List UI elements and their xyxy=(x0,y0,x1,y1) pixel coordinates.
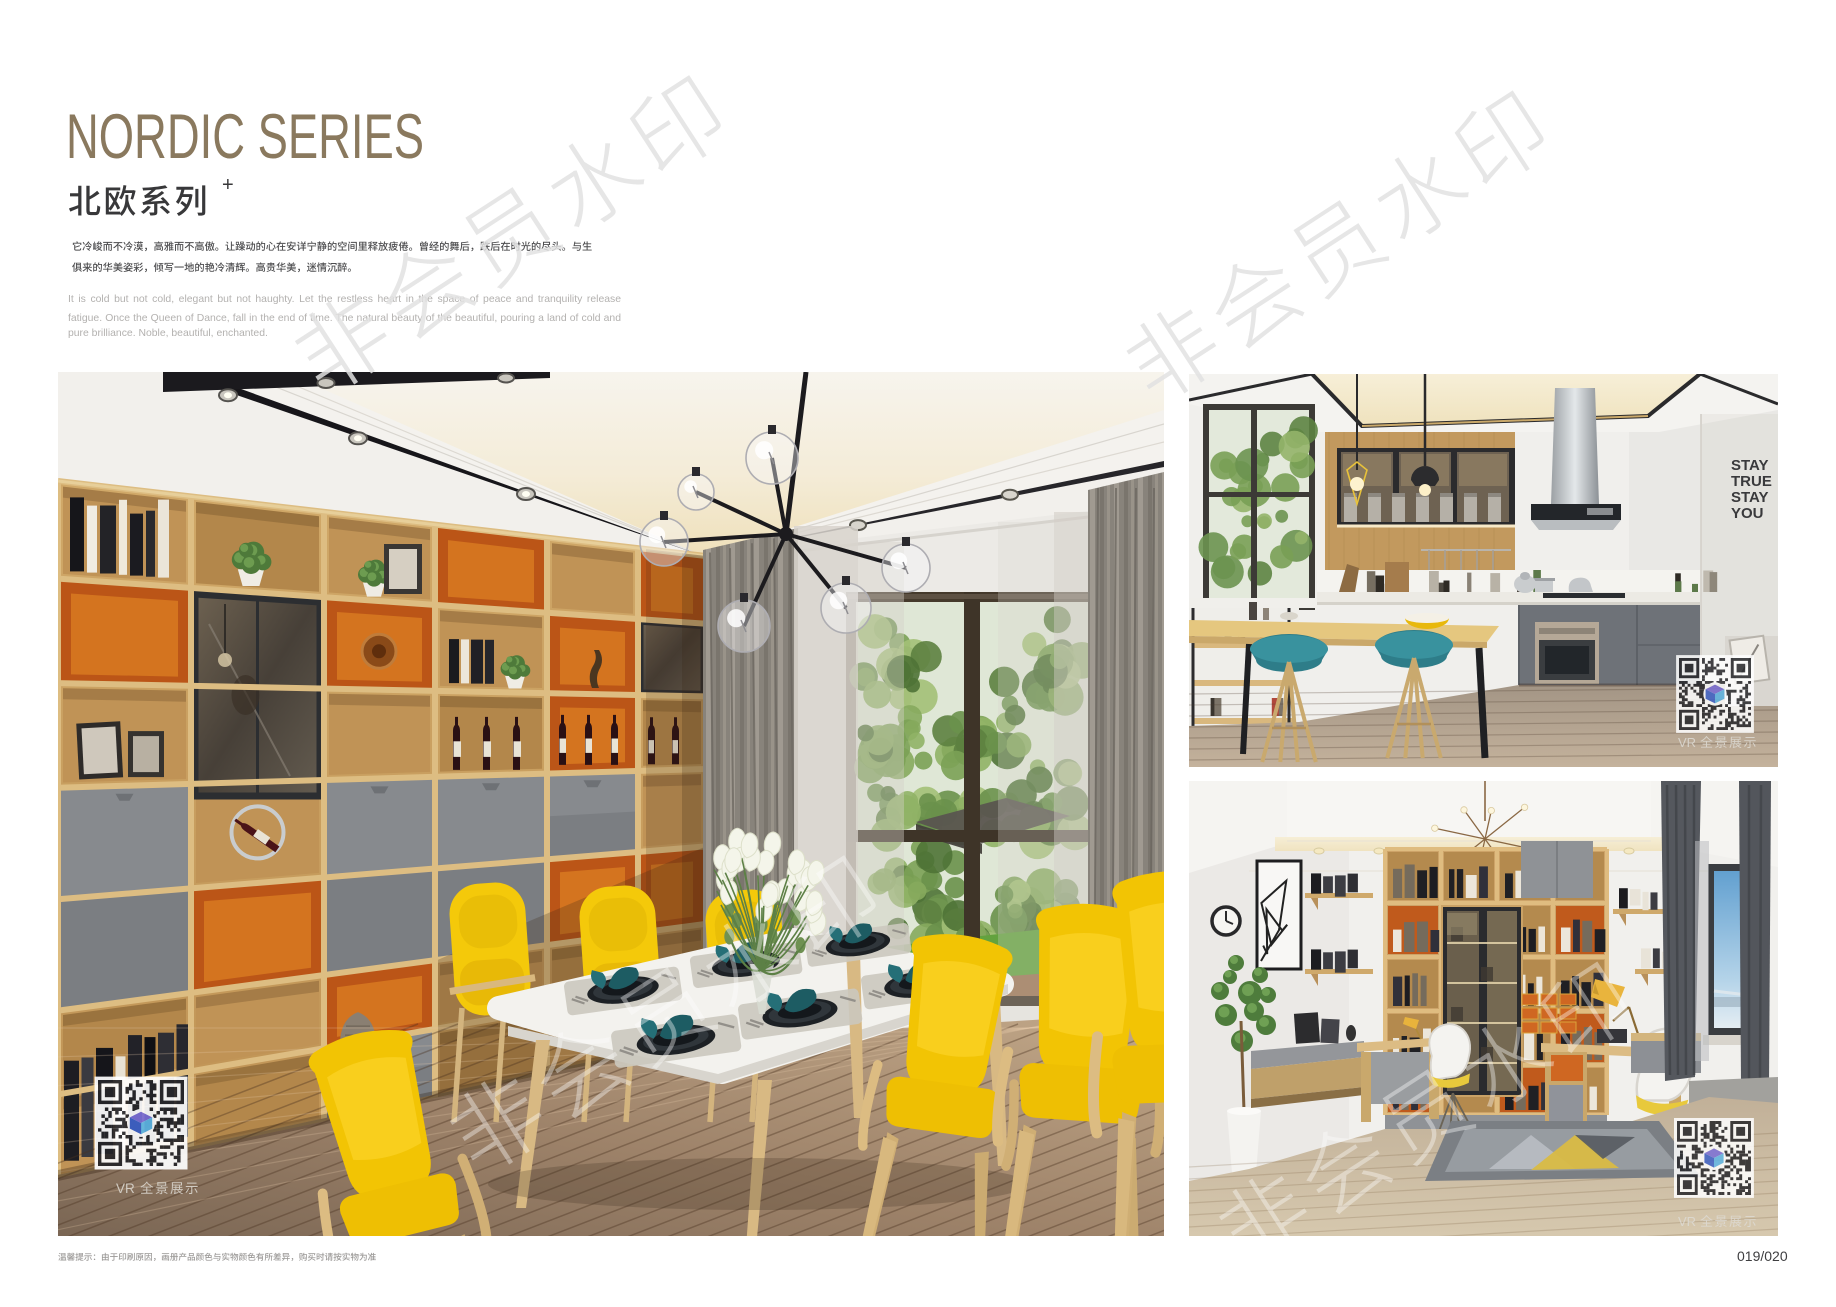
svg-text:VR: VR xyxy=(1678,1214,1696,1229)
svg-text:VR: VR xyxy=(116,1181,135,1196)
svg-text:+: + xyxy=(222,174,234,196)
svg-text:VR: VR xyxy=(1678,735,1696,750)
